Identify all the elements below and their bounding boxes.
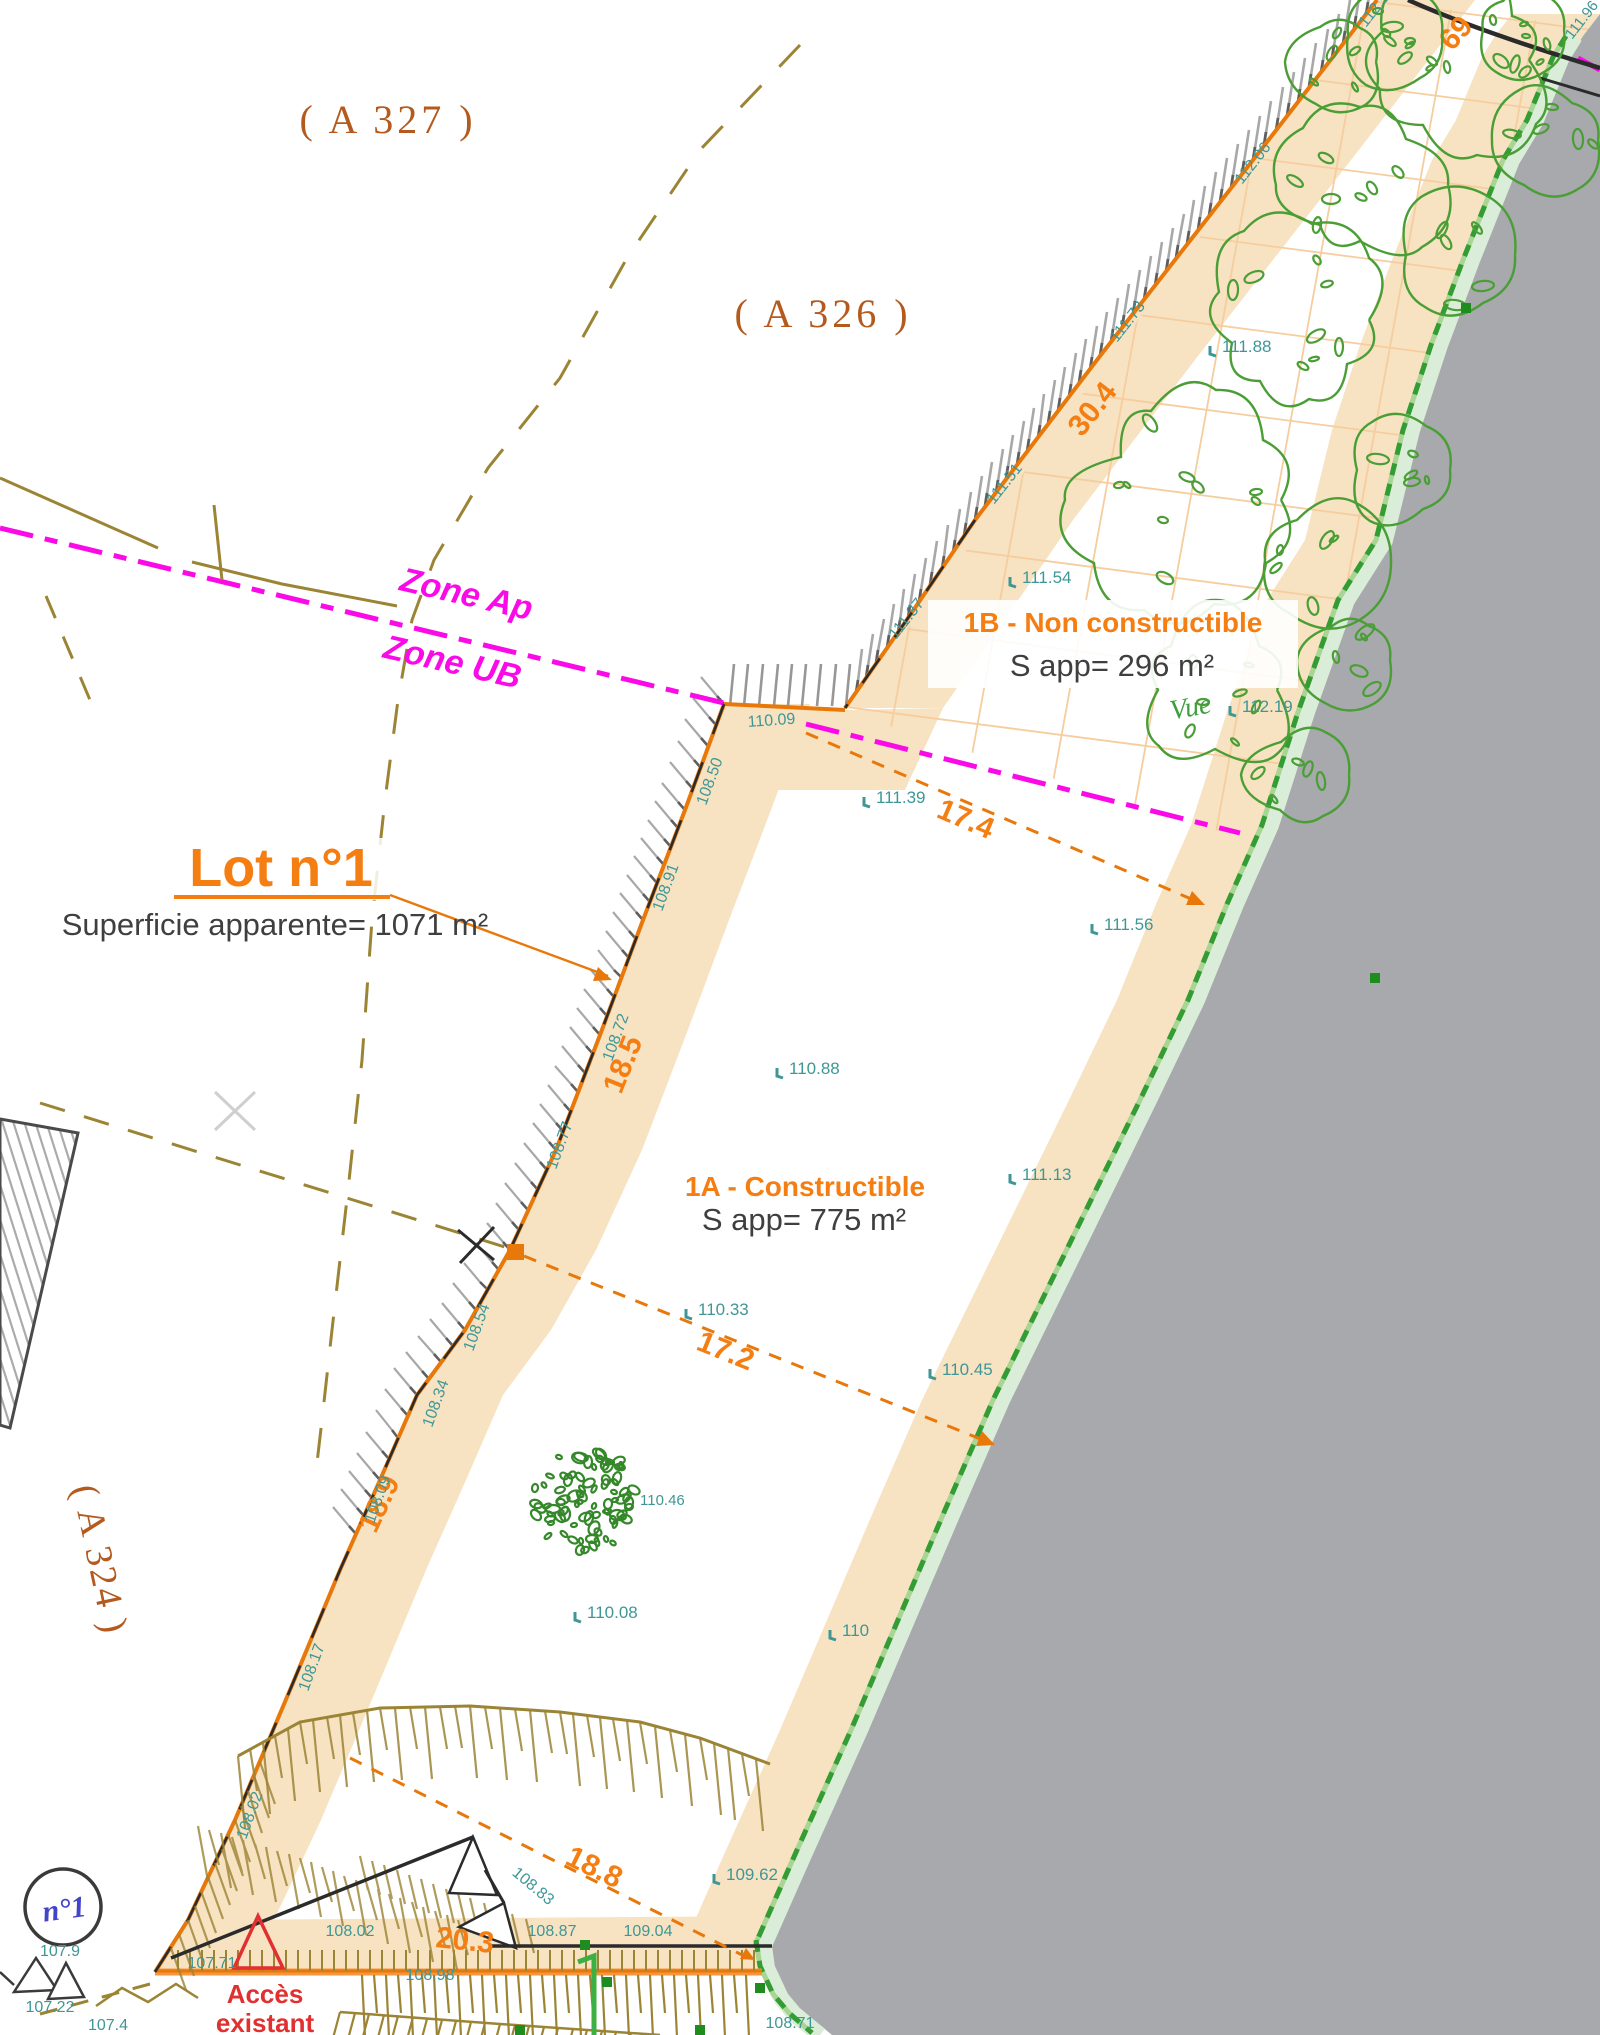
svg-text:1B - Non constructible: 1B - Non constructible xyxy=(964,607,1263,638)
svg-text:111.39: 111.39 xyxy=(876,788,925,807)
svg-text:111.88: 111.88 xyxy=(1222,337,1271,356)
svg-text:Lot n°1: Lot n°1 xyxy=(189,838,373,898)
svg-text:110.33: 110.33 xyxy=(698,1300,749,1319)
svg-text:107.9: 107.9 xyxy=(40,1943,80,1960)
svg-text:110.46: 110.46 xyxy=(640,1492,685,1509)
svg-text:108.87: 108.87 xyxy=(528,1923,577,1940)
svg-text:107.4: 107.4 xyxy=(88,2017,128,2034)
svg-text:Superficie apparente= 1071 m²: Superficie apparente= 1071 m² xyxy=(62,907,489,942)
svg-text:Accès: Accès xyxy=(227,1979,304,2009)
svg-text:110.45: 110.45 xyxy=(942,1360,993,1379)
svg-text:107.71: 107.71 xyxy=(188,1955,237,1972)
svg-text:( A 327 ): ( A 327 ) xyxy=(299,97,476,142)
svg-text:111.54: 111.54 xyxy=(1022,568,1071,587)
svg-text:112.19: 112.19 xyxy=(1242,697,1293,716)
svg-text:110: 110 xyxy=(842,1621,869,1640)
svg-text:( A 326 ): ( A 326 ) xyxy=(734,291,911,336)
svg-text:110.08: 110.08 xyxy=(587,1603,638,1622)
svg-text:109.62: 109.62 xyxy=(726,1865,778,1884)
svg-text:109.04: 109.04 xyxy=(624,1923,673,1940)
svg-text:110.09: 110.09 xyxy=(747,711,796,731)
svg-text:existant: existant xyxy=(216,2008,315,2035)
svg-text:111.56: 111.56 xyxy=(1104,915,1153,934)
svg-text:108.71: 108.71 xyxy=(766,2015,815,2032)
svg-text:1A - Constructible: 1A - Constructible xyxy=(685,1171,925,1202)
svg-text:111.13: 111.13 xyxy=(1022,1165,1071,1184)
svg-text:S app= 296 m²: S app= 296 m² xyxy=(1010,648,1214,683)
svg-text:n°1: n°1 xyxy=(40,1890,88,1929)
svg-text:108.98: 108.98 xyxy=(406,1967,455,1984)
svg-text:107.22: 107.22 xyxy=(26,1999,75,2016)
svg-text:20.3: 20.3 xyxy=(434,1921,496,1960)
svg-text:108.02: 108.02 xyxy=(326,1923,375,1940)
svg-text:110.88: 110.88 xyxy=(789,1059,840,1078)
svg-text:S app= 775 m²: S app= 775 m² xyxy=(702,1202,906,1237)
